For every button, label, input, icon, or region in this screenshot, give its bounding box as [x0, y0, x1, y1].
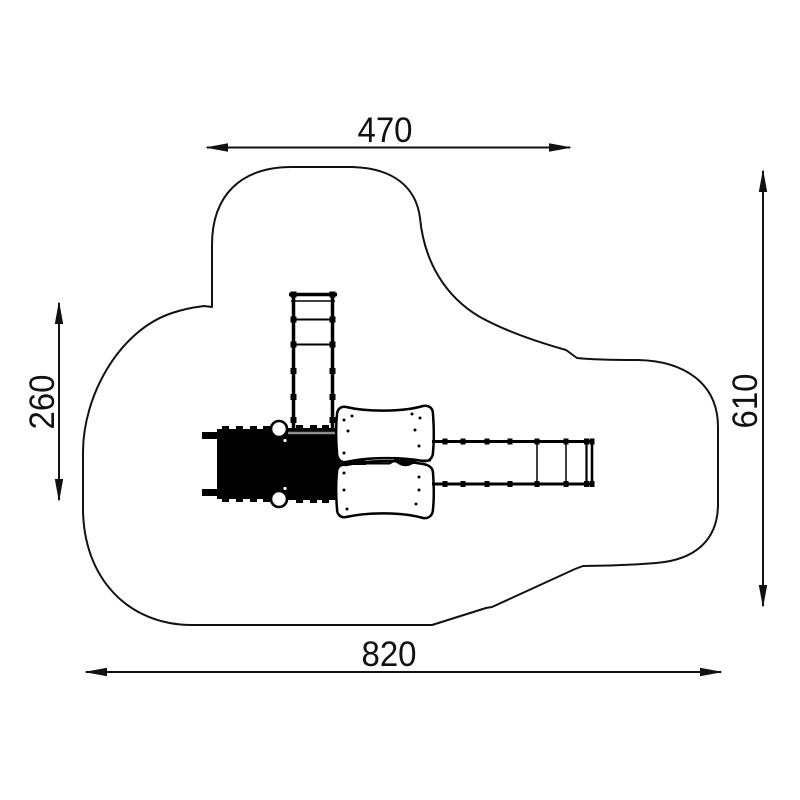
- arrowhead-up-icon: [55, 301, 63, 324]
- dimension-right-height: 610: [726, 169, 767, 608]
- arrowhead-left-icon: [84, 668, 107, 676]
- seam-step-block: [350, 461, 367, 466]
- deck-upper-half: [336, 406, 434, 462]
- monkey-bar-bridge: [432, 439, 595, 488]
- arrowhead-left-icon: [205, 143, 228, 151]
- bridge-connector-nubs: [443, 439, 595, 488]
- slide-exit-bar: [202, 489, 219, 496]
- support-post: [271, 491, 287, 507]
- plan-svg: 470 820 260 610: [0, 0, 800, 800]
- arrowhead-down-icon: [759, 585, 767, 608]
- dimension-bottom-width: 820: [84, 635, 723, 676]
- dimension-label-left: 260: [23, 375, 62, 430]
- playground-plan-drawing: 470 820 260 610: [0, 0, 800, 800]
- arrowhead-down-icon: [55, 479, 63, 502]
- dimension-label-bottom: 820: [362, 635, 417, 674]
- arrowhead-up-icon: [759, 169, 767, 192]
- ladder-connector-nubs: [291, 292, 336, 424]
- support-post: [271, 421, 287, 437]
- dimension-left-height: 260: [23, 301, 63, 502]
- climbing-ladder: [289, 292, 337, 430]
- slide-body-right: [288, 428, 340, 500]
- slide-exit-bar: [202, 432, 219, 439]
- wavy-deck-platform: [336, 406, 434, 518]
- arrowhead-right-icon: [549, 143, 572, 151]
- post-pin-dot: [283, 487, 286, 490]
- safety-zone-path: [83, 167, 718, 625]
- post-pin-dot: [283, 439, 286, 442]
- arrowhead-right-icon: [700, 668, 723, 676]
- dimension-label-top: 470: [358, 111, 413, 150]
- safety-zone-outline: [83, 167, 718, 625]
- slide-black-platform: [202, 421, 340, 507]
- dimension-label-right: 610: [726, 374, 765, 429]
- dimension-top-width: 470: [205, 111, 572, 152]
